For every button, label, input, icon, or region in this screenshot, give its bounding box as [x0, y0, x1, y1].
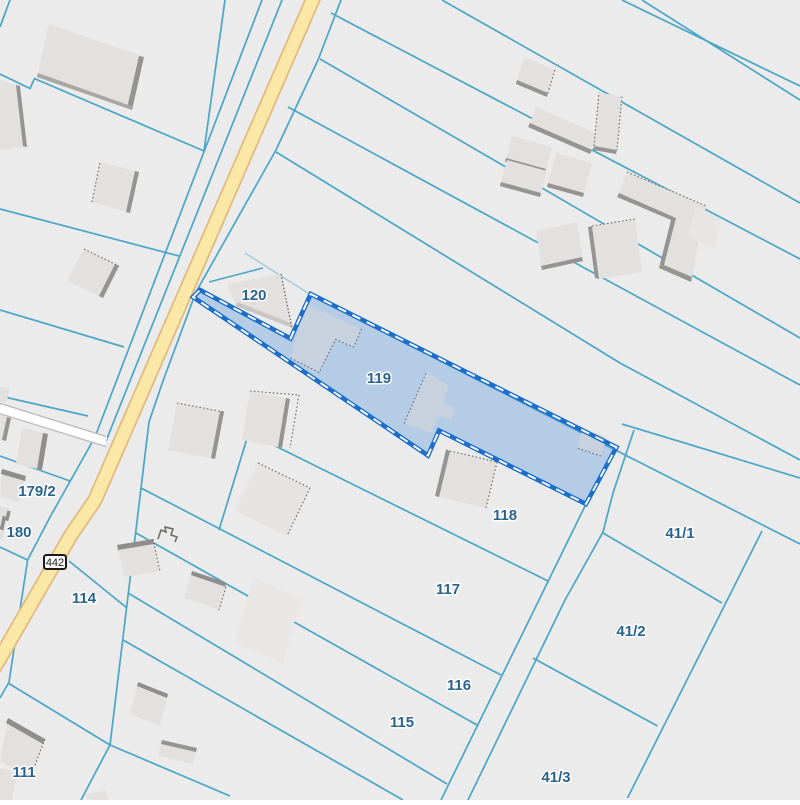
svg-text:120: 120 [241, 287, 266, 304]
svg-text:41/2: 41/2 [616, 623, 645, 640]
svg-text:116: 116 [447, 677, 471, 694]
svg-text:114: 114 [72, 590, 97, 607]
svg-text:117: 117 [436, 581, 460, 598]
svg-text:41/3: 41/3 [541, 769, 570, 786]
svg-text:442: 442 [46, 557, 64, 569]
svg-text:111: 111 [12, 764, 35, 781]
svg-text:180: 180 [6, 524, 31, 541]
svg-text:118: 118 [493, 507, 517, 524]
svg-text:179/2: 179/2 [18, 483, 56, 500]
svg-text:41/1: 41/1 [665, 525, 694, 542]
svg-text:119: 119 [367, 370, 391, 387]
svg-text:115: 115 [390, 714, 414, 731]
